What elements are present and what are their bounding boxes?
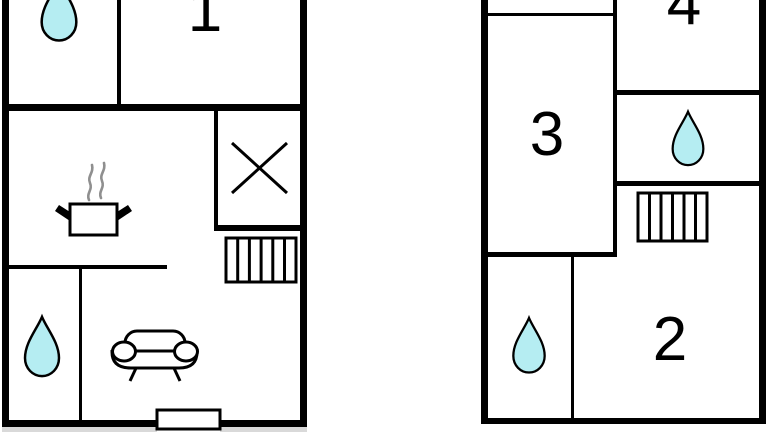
room-label-1: 1 bbox=[188, 0, 222, 45]
wall bbox=[484, 252, 617, 257]
floor-plans-image: 1 bbox=[0, 0, 768, 432]
sofa-icon bbox=[112, 331, 198, 381]
water-drop-icon bbox=[513, 318, 544, 373]
wall bbox=[481, 0, 488, 424]
plan-shadow bbox=[220, 427, 307, 432]
cooking-pot-icon bbox=[55, 204, 132, 235]
wall bbox=[759, 0, 766, 424]
right-floor-plan: 3 4 2 bbox=[481, 0, 766, 424]
wall bbox=[2, 420, 307, 427]
sofa-armrest bbox=[175, 342, 198, 361]
wall bbox=[117, 0, 121, 104]
wall bbox=[79, 265, 82, 421]
steam-line bbox=[100, 163, 104, 198]
wall bbox=[2, 265, 167, 269]
wall bbox=[481, 418, 766, 424]
pot-handle bbox=[117, 205, 132, 221]
wall bbox=[214, 111, 218, 230]
wall bbox=[571, 257, 574, 418]
steam-line bbox=[88, 165, 92, 200]
wall bbox=[613, 0, 617, 257]
water-drop-icon bbox=[25, 317, 59, 376]
water-drop-icon bbox=[42, 0, 77, 40]
steam-icon bbox=[88, 163, 104, 200]
stairs-icon bbox=[638, 193, 707, 241]
wall bbox=[488, 13, 613, 16]
floor-plans-svg: 1 bbox=[0, 0, 768, 432]
wall bbox=[214, 225, 307, 231]
room-label-4: 4 bbox=[667, 0, 701, 38]
wall bbox=[2, 104, 307, 111]
pot-handle bbox=[55, 205, 70, 221]
stairs-icon bbox=[226, 238, 296, 282]
room-label-2: 2 bbox=[653, 305, 687, 374]
room-label-3: 3 bbox=[530, 100, 564, 169]
x-mark-icon bbox=[232, 143, 287, 193]
wall bbox=[617, 90, 759, 95]
pot-body bbox=[70, 204, 117, 235]
entrance-door bbox=[157, 410, 220, 429]
wall bbox=[300, 0, 307, 427]
left-floor-plan: 1 bbox=[2, 0, 307, 432]
water-drop-icon bbox=[673, 112, 704, 165]
plan-shadow bbox=[2, 427, 157, 432]
wall bbox=[2, 0, 9, 427]
sofa-armrest bbox=[113, 342, 136, 361]
wall bbox=[617, 181, 759, 186]
